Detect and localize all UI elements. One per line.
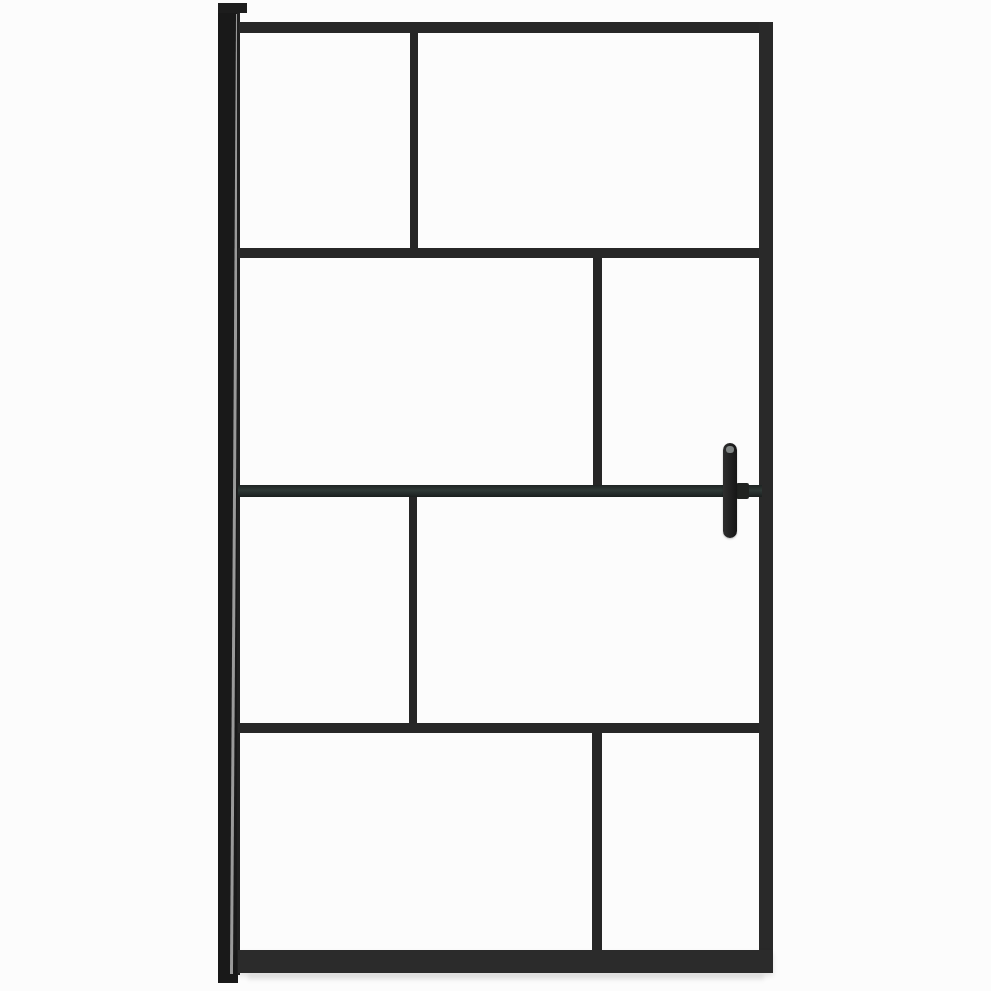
floor-shadow bbox=[248, 974, 764, 980]
door-rail-row2 bbox=[238, 248, 759, 258]
door-top-rail bbox=[239, 22, 773, 33]
door-right-stile bbox=[759, 22, 773, 973]
handle-top-highlight bbox=[726, 446, 734, 453]
mullion-row3 bbox=[409, 497, 417, 723]
support-bar bbox=[238, 485, 762, 497]
shower-door-product-photo: Walk-in shower screen: clear glass with … bbox=[0, 0, 991, 991]
mullion-row1 bbox=[410, 33, 418, 248]
door-bottom-rail bbox=[238, 950, 773, 973]
door-handle-grip bbox=[723, 443, 737, 538]
mullion-row4 bbox=[592, 733, 602, 950]
mullion-row2 bbox=[593, 258, 602, 485]
wall-profile-cap bbox=[218, 3, 247, 13]
handle-clamp bbox=[736, 483, 749, 499]
door-rail-row4 bbox=[238, 723, 759, 733]
